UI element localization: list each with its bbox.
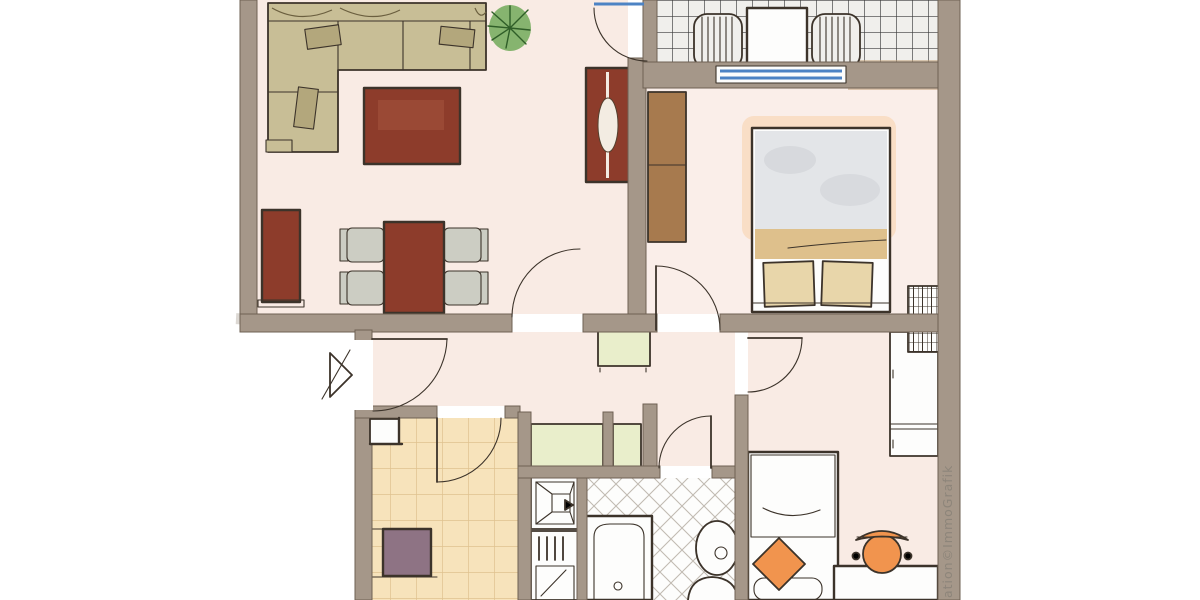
bed-pillow-right: [821, 261, 873, 307]
balcony-chair-left: [694, 14, 742, 68]
sofa-skirt: [266, 140, 292, 152]
wall-bath-top-left: [518, 466, 660, 478]
desk-chair-armrest-left: [853, 553, 860, 560]
desk-chair-armrest-right: [905, 553, 912, 560]
dining-chair: [347, 271, 384, 305]
bedroom-window: [716, 66, 846, 83]
dining-chair: [444, 271, 481, 305]
duvet-shade-2: [820, 174, 880, 206]
wall-kitchen-right: [518, 412, 531, 600]
kitchen-counter-left: [531, 424, 603, 467]
entry-pillar: [370, 418, 402, 444]
hallway-floor: [372, 332, 735, 406]
wall-living-right: [628, 58, 646, 314]
entrance-marker: [322, 350, 352, 399]
kitchen-sink-unit: [531, 477, 579, 529]
dining-chair: [444, 228, 481, 262]
tv-screen: [598, 98, 618, 152]
kitchen-counter-right: [613, 424, 641, 467]
entrance-opening: [354, 340, 373, 410]
sofa-pillow-1: [305, 25, 341, 50]
wall-left-upper: [240, 0, 257, 332]
watermark-text: ation©ImmoGrafik: [940, 465, 955, 598]
sofa-pillow-2: [439, 26, 475, 47]
bedroom-wardrobe: [648, 92, 686, 242]
wall-bath-left: [577, 478, 587, 600]
entry-pillar-box: [370, 419, 399, 444]
double-bed: [752, 128, 890, 312]
bed-pillow-left: [763, 261, 815, 307]
entrance-triangle-icon: [330, 353, 352, 397]
kitchen-table: [383, 529, 431, 576]
toilet: [696, 521, 738, 575]
wall-balcony-left: [643, 0, 657, 62]
bathtub: [586, 516, 652, 600]
tv-sideboard: [586, 68, 630, 182]
floor-plan-page: ation©ImmoGrafik: [0, 0, 1200, 600]
duvet-shade-1: [764, 146, 816, 174]
desk-chair-seat: [863, 535, 901, 573]
sideboard: [262, 210, 300, 302]
wall-living-bottom-a: [240, 314, 512, 332]
dining-chair: [347, 228, 384, 262]
dining-table: [384, 222, 444, 313]
kitchen-stove-unit: [531, 531, 579, 600]
coffee-table-sheen: [378, 100, 444, 130]
sink-cabinet: [531, 477, 579, 529]
single-bed: [748, 452, 838, 600]
balcony-chair-right: [812, 14, 860, 68]
floor-plan: ation©ImmoGrafik: [0, 0, 1200, 600]
wall-living-bottom-b: [583, 314, 657, 332]
window-frame: [716, 66, 846, 83]
wall-bottom-right-band: [720, 314, 958, 332]
wardrobe-body: [648, 92, 686, 242]
sofa-pillow-3: [294, 87, 319, 129]
wall-second-bedroom-left: [735, 395, 748, 600]
hall-shelf: [598, 330, 650, 366]
